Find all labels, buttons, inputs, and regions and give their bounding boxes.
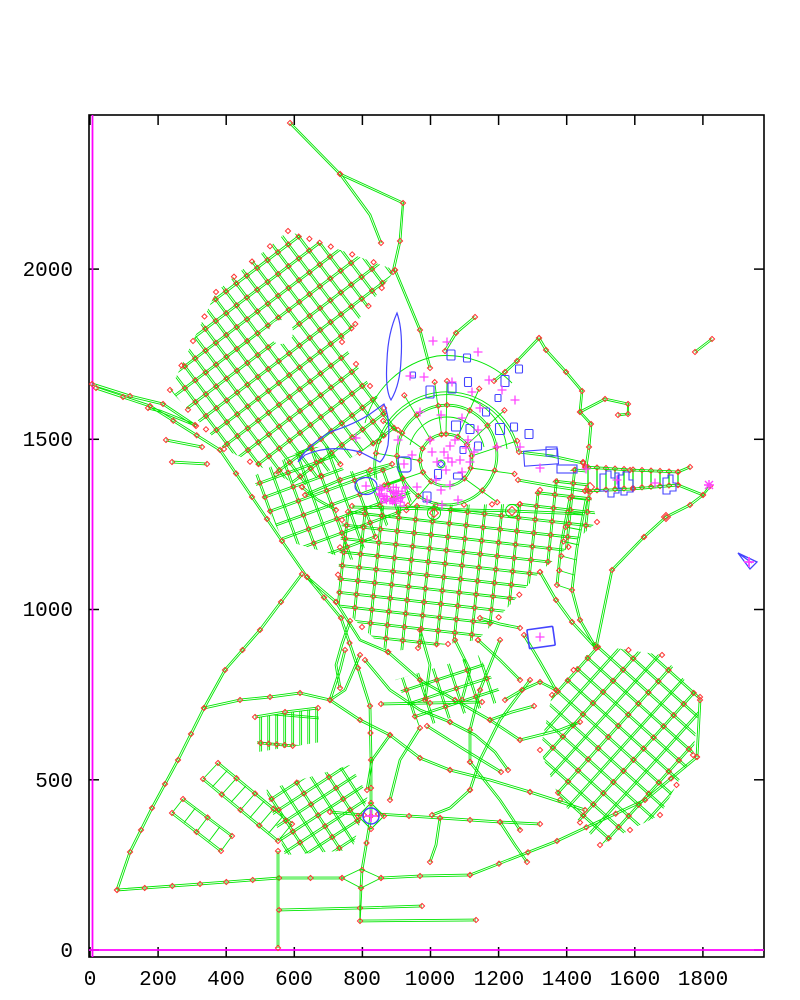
svg-text:600: 600: [275, 969, 313, 992]
svg-text:1600: 1600: [610, 969, 660, 992]
svg-text:1200: 1200: [474, 969, 524, 992]
svg-text:1000: 1000: [23, 600, 73, 623]
svg-text:0: 0: [84, 969, 97, 992]
svg-text:1400: 1400: [542, 969, 592, 992]
svg-text:800: 800: [343, 969, 381, 992]
svg-text:1500: 1500: [23, 430, 73, 453]
svg-text:0: 0: [60, 941, 73, 964]
svg-text:400: 400: [207, 969, 245, 992]
svg-text:1000: 1000: [405, 969, 455, 992]
svg-text:500: 500: [35, 771, 73, 794]
svg-text:1800: 1800: [678, 969, 728, 992]
svg-text:200: 200: [139, 969, 177, 992]
svg-text:2000: 2000: [23, 260, 73, 283]
